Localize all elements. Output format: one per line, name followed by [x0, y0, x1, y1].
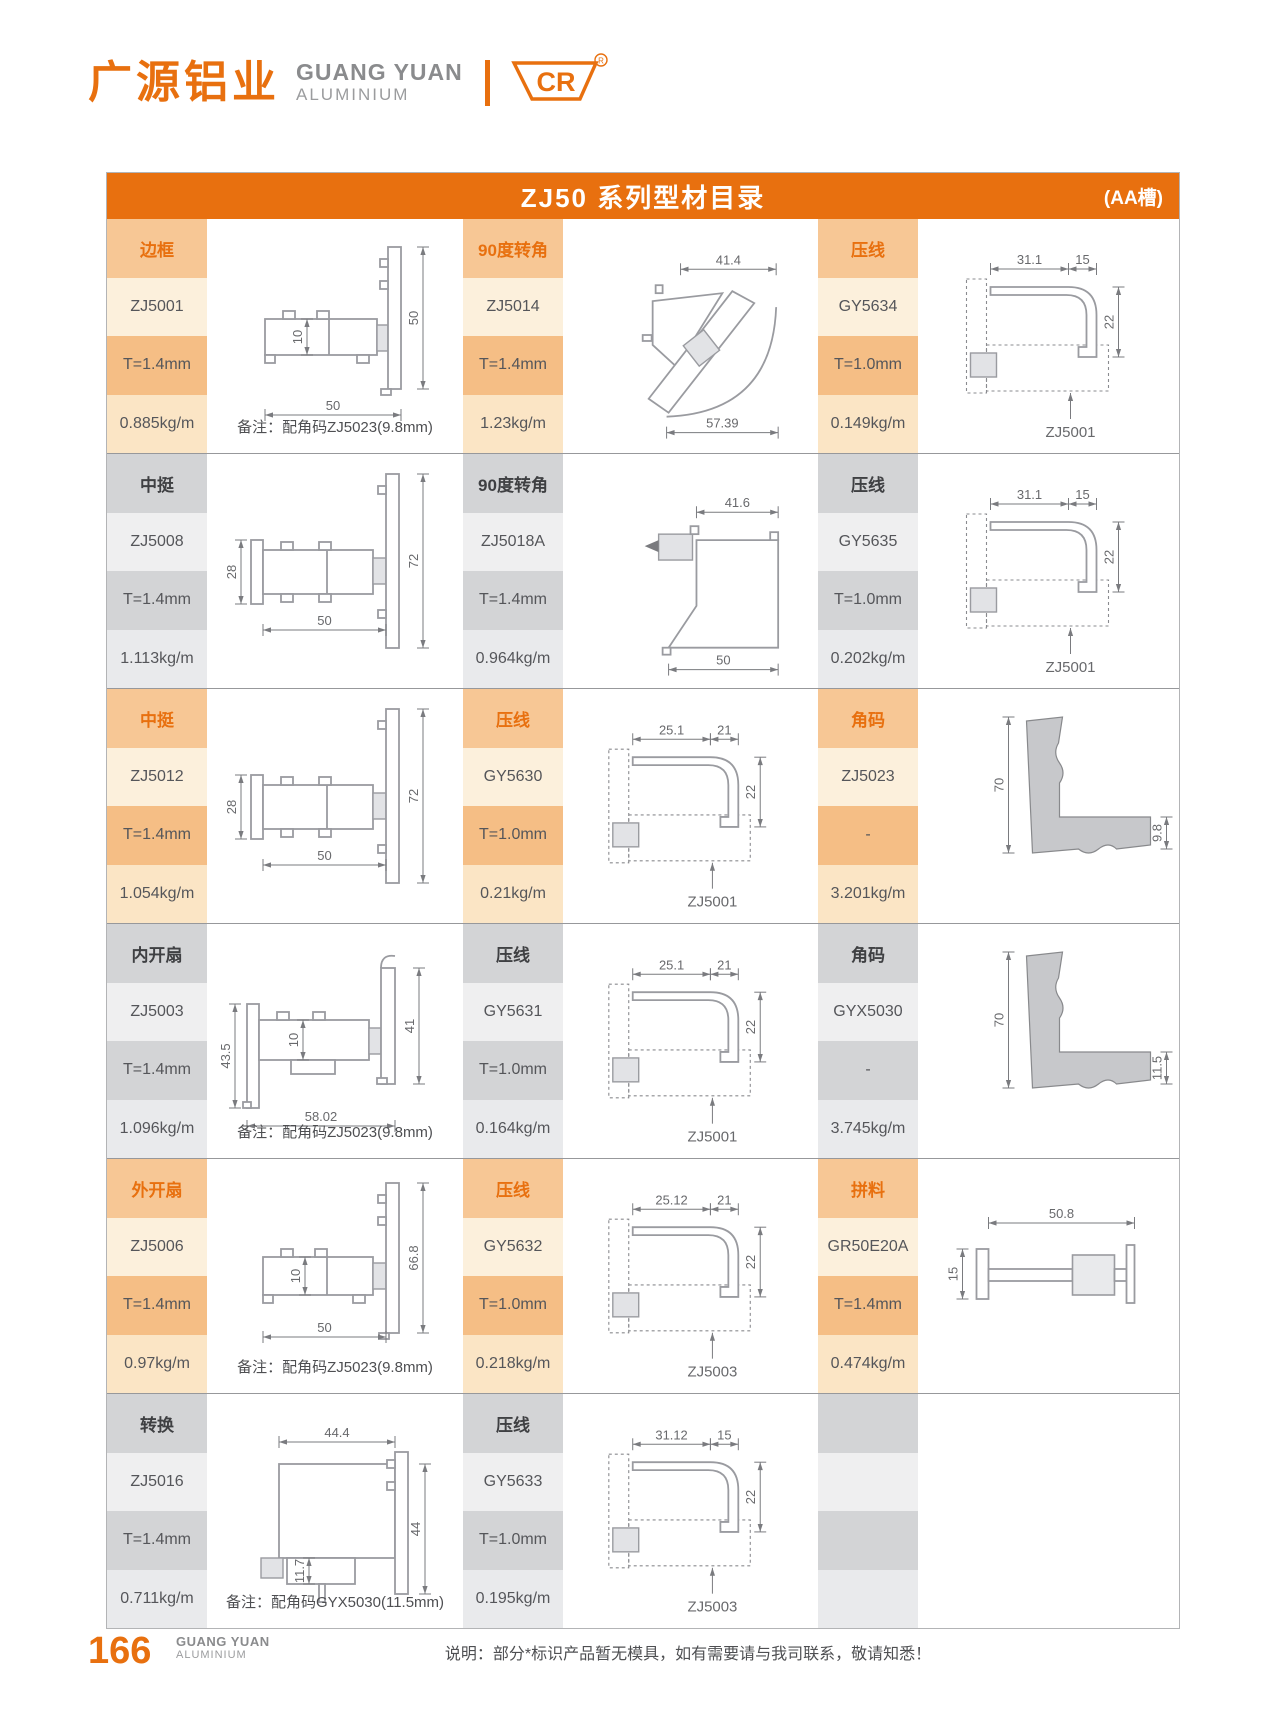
svg-text:ZJ5001: ZJ5001: [688, 894, 738, 911]
diagram-cell: 41.457.39: [563, 219, 818, 453]
category-cell: 90度转角: [463, 454, 563, 513]
diagram-cell: 41.650: [563, 454, 818, 688]
thickness-cell: -: [818, 1041, 918, 1100]
category-cell: 压线: [463, 689, 563, 748]
profile-diagram-mullion: 287250: [207, 454, 463, 688]
diagram-cell: 50.815: [918, 1159, 1179, 1393]
label-column: 中挺ZJ5008T=1.4mm1.113kg/m: [107, 454, 207, 688]
svg-text:50: 50: [716, 653, 730, 668]
catalog-row: 内开扇ZJ5003T=1.4mm1.096kg/m43.51058.0241备注…: [107, 923, 1179, 1158]
svg-text:10: 10: [288, 1269, 303, 1283]
diagram-cell: 31.121522ZJ5003: [563, 1394, 818, 1628]
model-cell: GYX5030: [818, 983, 918, 1042]
weight-cell: 0.21kg/m: [463, 865, 563, 924]
diagram-cell: 287250: [207, 454, 463, 688]
weight-cell: 3.201kg/m: [818, 865, 918, 924]
model-cell: ZJ5006: [107, 1218, 207, 1277]
svg-text:28: 28: [224, 800, 239, 814]
diagram-cell: [918, 1394, 1179, 1628]
category-cell: 角码: [818, 924, 918, 983]
model-cell: ZJ5023: [818, 748, 918, 807]
category-cell: 压线: [463, 1159, 563, 1218]
model-cell: ZJ5016: [107, 1453, 207, 1512]
logo-chinese: 广源铝业: [88, 61, 280, 105]
thickness-cell: T=1.4mm: [107, 336, 207, 395]
svg-text:15: 15: [717, 1427, 731, 1442]
svg-text:50: 50: [406, 311, 421, 325]
svg-text:9.8: 9.8: [1150, 824, 1165, 842]
weight-cell: 0.885kg/m: [107, 395, 207, 454]
diagram-cell: 43.51058.0241备注：配角码ZJ5023(9.8mm): [207, 924, 463, 1158]
label-column: 角码GYX5030-3.745kg/m: [818, 924, 918, 1158]
svg-text:10: 10: [290, 330, 305, 344]
svg-text:22: 22: [1102, 550, 1117, 564]
svg-text:ZJ5003: ZJ5003: [688, 1364, 738, 1381]
svg-text:43.5: 43.5: [218, 1043, 233, 1068]
svg-text:21: 21: [717, 1192, 731, 1207]
weight-cell: 1.113kg/m: [107, 630, 207, 689]
profile-diagram-bead: 25.122122ZJ5003: [563, 1159, 818, 1393]
svg-text:ZJ5001: ZJ5001: [1045, 424, 1095, 441]
profile-diagram-bracket: 7011.5: [918, 924, 1179, 1158]
svg-text:57.39: 57.39: [706, 416, 738, 431]
profile-diagram-empty: [918, 1394, 1179, 1628]
diagram-cell: 105050备注：配角码ZJ5023(9.8mm): [207, 219, 463, 453]
catalog-row: 外开扇ZJ5006T=1.4mm0.97kg/m105066.8备注：配角码ZJ…: [107, 1158, 1179, 1393]
thickness-cell: [818, 1511, 918, 1570]
label-column: 压线GY5633T=1.0mm0.195kg/m: [463, 1394, 563, 1628]
label-column: [818, 1394, 918, 1628]
profile-diagram-corner-sq: 41.650: [563, 454, 818, 688]
weight-cell: 1.054kg/m: [107, 865, 207, 924]
thickness-cell: T=1.4mm: [107, 806, 207, 865]
diagram-cell: 709.8: [918, 689, 1179, 923]
label-column: 角码ZJ5023-3.201kg/m: [818, 689, 918, 923]
weight-cell: 0.964kg/m: [463, 630, 563, 689]
label-column: 压线GY5634T=1.0mm0.149kg/m: [818, 219, 918, 453]
label-column: 压线GY5630T=1.0mm0.21kg/m: [463, 689, 563, 923]
svg-text:11.7: 11.7: [292, 1559, 307, 1583]
catalog-table: ZJ50 系列型材目录 (AA槽) 边框ZJ5001T=1.4mm0.885kg…: [106, 172, 1180, 1629]
category-cell: 边框: [107, 219, 207, 278]
label-column: 内开扇ZJ5003T=1.4mm1.096kg/m: [107, 924, 207, 1158]
svg-text:15: 15: [946, 1267, 961, 1281]
svg-text:41: 41: [402, 1019, 417, 1033]
category-cell: 90度转角: [463, 219, 563, 278]
weight-cell: 1.23kg/m: [463, 395, 563, 454]
thickness-cell: T=1.0mm: [463, 1041, 563, 1100]
svg-text:21: 21: [717, 722, 731, 737]
svg-text:50: 50: [326, 398, 340, 413]
thickness-cell: T=1.4mm: [818, 1276, 918, 1335]
thickness-cell: T=1.4mm: [107, 1276, 207, 1335]
profile-diagram-bead: 25.12122ZJ5001: [563, 924, 818, 1158]
logo-divider: [485, 60, 490, 106]
weight-cell: 0.202kg/m: [818, 630, 918, 689]
diagram-cell: 25.12122ZJ5001: [563, 924, 818, 1158]
note-text: 备注：配角码GYX5030(11.5mm): [207, 1591, 463, 1612]
weight-cell: 0.474kg/m: [818, 1335, 918, 1394]
logo-english-sub: ALUMINIUM: [296, 85, 463, 105]
svg-text:22: 22: [743, 1020, 758, 1034]
profile-diagram-corner-z: 41.457.39: [563, 219, 818, 453]
title-tag: (AA槽): [1104, 173, 1163, 219]
diagram-cell: 7011.5: [918, 924, 1179, 1158]
thickness-cell: T=1.0mm: [463, 1276, 563, 1335]
svg-text:10: 10: [286, 1033, 301, 1047]
diagram-cell: 25.12122ZJ5001: [563, 689, 818, 923]
svg-text:15: 15: [1075, 252, 1089, 267]
logo-english: GUANG YUAN ALUMINIUM: [296, 60, 463, 106]
label-column: 中挺ZJ5012T=1.4mm1.054kg/m: [107, 689, 207, 923]
thickness-cell: T=1.4mm: [107, 1511, 207, 1570]
svg-text:50: 50: [317, 613, 331, 628]
model-cell: ZJ5012: [107, 748, 207, 807]
label-column: 边框ZJ5001T=1.4mm0.885kg/m: [107, 219, 207, 453]
svg-text:50.8: 50.8: [1049, 1206, 1074, 1221]
model-cell: ZJ5001: [107, 278, 207, 337]
footer-brand-name: GUANG YUAN: [176, 1634, 270, 1649]
svg-text:22: 22: [1102, 315, 1117, 329]
footer-brand: GUANG YUAN ALUMINIUM: [176, 1634, 270, 1661]
weight-cell: 0.149kg/m: [818, 395, 918, 454]
svg-text:ZJ5003: ZJ5003: [688, 1599, 738, 1616]
label-column: 压线GY5635T=1.0mm0.202kg/m: [818, 454, 918, 688]
profile-diagram-bead: 31.11522ZJ5001: [918, 219, 1179, 453]
svg-text:ZJ5001: ZJ5001: [688, 1129, 738, 1146]
label-column: 拼料GR50E20AT=1.4mm0.474kg/m: [818, 1159, 918, 1393]
diagram-cell: 287250: [207, 689, 463, 923]
svg-text:44.4: 44.4: [324, 1425, 349, 1440]
catalog-row: 中挺ZJ5008T=1.4mm1.113kg/m28725090度转角ZJ501…: [107, 453, 1179, 688]
category-cell: 拼料: [818, 1159, 918, 1218]
svg-text:28: 28: [224, 565, 239, 579]
page-number: 166: [88, 1632, 151, 1670]
thickness-cell: T=1.4mm: [107, 571, 207, 630]
svg-text:ZJ5001: ZJ5001: [1045, 659, 1095, 676]
footer: 166 GUANG YUAN ALUMINIUM 说明：部分*标识产品暂无模具，…: [88, 1632, 1180, 1692]
category-cell: 外开扇: [107, 1159, 207, 1218]
model-cell: GY5630: [463, 748, 563, 807]
model-cell: GY5634: [818, 278, 918, 337]
svg-text:11.5: 11.5: [1150, 1056, 1165, 1080]
svg-text:72: 72: [406, 554, 421, 568]
footer-brand-sub: ALUMINIUM: [176, 1649, 270, 1661]
weight-cell: [818, 1570, 918, 1629]
thickness-cell: T=1.0mm: [818, 571, 918, 630]
category-cell: [818, 1394, 918, 1453]
catalog-table-body: 边框ZJ5001T=1.4mm0.885kg/m105050备注：配角码ZJ50…: [107, 219, 1179, 1628]
label-column: 90度转角ZJ5014T=1.4mm1.23kg/m: [463, 219, 563, 453]
svg-text:66.8: 66.8: [406, 1245, 421, 1270]
category-cell: 压线: [818, 454, 918, 513]
weight-cell: 0.218kg/m: [463, 1335, 563, 1394]
category-cell: 压线: [463, 1394, 563, 1453]
svg-text:50: 50: [317, 1320, 331, 1335]
svg-text:44: 44: [408, 1522, 423, 1536]
svg-text:22: 22: [743, 1255, 758, 1269]
svg-text:70: 70: [992, 778, 1007, 792]
svg-text:41.4: 41.4: [716, 252, 741, 267]
weight-cell: 0.164kg/m: [463, 1100, 563, 1159]
svg-text:25.1: 25.1: [659, 722, 684, 737]
footer-note: 说明：部分*标识产品暂无模具，如有需要请与我司联系，敬请知悉！: [338, 1640, 1038, 1664]
svg-text:31.1: 31.1: [1017, 252, 1042, 267]
header: 广源铝业 GUANG YUAN ALUMINIUM CR R: [88, 44, 612, 122]
svg-text:50: 50: [317, 848, 331, 863]
note-text: 备注：配角码ZJ5023(9.8mm): [207, 416, 463, 437]
thickness-cell: T=1.4mm: [107, 1041, 207, 1100]
svg-text:70: 70: [992, 1013, 1007, 1027]
svg-text:41.6: 41.6: [725, 495, 750, 510]
category-cell: 角码: [818, 689, 918, 748]
svg-text:15: 15: [1075, 487, 1089, 502]
label-column: 转换ZJ5016T=1.4mm0.711kg/m: [107, 1394, 207, 1628]
label-column: 压线GY5632T=1.0mm0.218kg/m: [463, 1159, 563, 1393]
profile-diagram-bracket: 709.8: [918, 689, 1179, 923]
svg-text:22: 22: [743, 785, 758, 799]
model-cell: ZJ5018A: [463, 513, 563, 572]
model-cell: GR50E20A: [818, 1218, 918, 1277]
cr-badge-text: CR: [536, 67, 575, 97]
svg-text:21: 21: [717, 957, 731, 972]
profile-diagram-bead: 31.11522ZJ5001: [918, 454, 1179, 688]
model-cell: GY5632: [463, 1218, 563, 1277]
catalog-page: 广源铝业 GUANG YUAN ALUMINIUM CR R ZJ50 系列型材…: [0, 0, 1277, 1721]
model-cell: GY5631: [463, 983, 563, 1042]
label-column: 90度转角ZJ5018AT=1.4mm0.964kg/m: [463, 454, 563, 688]
diagram-cell: 31.11522ZJ5001: [918, 454, 1179, 688]
model-cell: GY5633: [463, 1453, 563, 1512]
catalog-row: 边框ZJ5001T=1.4mm0.885kg/m105050备注：配角码ZJ50…: [107, 219, 1179, 453]
model-cell: GY5635: [818, 513, 918, 572]
title-bar: ZJ50 系列型材目录 (AA槽): [107, 173, 1179, 219]
svg-text:72: 72: [406, 789, 421, 803]
svg-text:25.12: 25.12: [655, 1192, 687, 1207]
profile-diagram-mullion: 287250: [207, 689, 463, 923]
thickness-cell: T=1.0mm: [463, 1511, 563, 1570]
page-title: ZJ50 系列型材目录: [107, 178, 1179, 215]
note-text: 备注：配角码ZJ5023(9.8mm): [207, 1356, 463, 1377]
label-column: 压线GY5631T=1.0mm0.164kg/m: [463, 924, 563, 1158]
model-cell: [818, 1453, 918, 1512]
category-cell: 内开扇: [107, 924, 207, 983]
weight-cell: 0.711kg/m: [107, 1570, 207, 1629]
weight-cell: 0.97kg/m: [107, 1335, 207, 1394]
svg-text:22: 22: [743, 1490, 758, 1504]
category-cell: 压线: [463, 924, 563, 983]
profile-diagram-bead: 25.12122ZJ5001: [563, 689, 818, 923]
svg-text:R: R: [598, 57, 604, 66]
diagram-cell: 25.122122ZJ5003: [563, 1159, 818, 1393]
thickness-cell: T=1.0mm: [818, 336, 918, 395]
svg-text:31.12: 31.12: [655, 1427, 687, 1442]
profile-diagram-joiner: 50.815: [918, 1159, 1179, 1393]
svg-text:31.1: 31.1: [1017, 487, 1042, 502]
model-cell: ZJ5003: [107, 983, 207, 1042]
logo-english-name: GUANG YUAN: [296, 60, 463, 85]
cr-badge-icon: CR R: [508, 51, 612, 115]
thickness-cell: T=1.4mm: [463, 336, 563, 395]
svg-text:25.1: 25.1: [659, 957, 684, 972]
diagram-cell: 44.411.744备注：配角码GYX5030(11.5mm): [207, 1394, 463, 1628]
catalog-row: 中挺ZJ5012T=1.4mm1.054kg/m287250压线GY5630T=…: [107, 688, 1179, 923]
model-cell: ZJ5008: [107, 513, 207, 572]
thickness-cell: -: [818, 806, 918, 865]
category-cell: 中挺: [107, 689, 207, 748]
note-text: 备注：配角码ZJ5023(9.8mm): [207, 1121, 463, 1142]
weight-cell: 0.195kg/m: [463, 1570, 563, 1629]
label-column: 外开扇ZJ5006T=1.4mm0.97kg/m: [107, 1159, 207, 1393]
thickness-cell: T=1.0mm: [463, 806, 563, 865]
thickness-cell: T=1.4mm: [463, 571, 563, 630]
model-cell: ZJ5014: [463, 278, 563, 337]
diagram-cell: 31.11522ZJ5001: [918, 219, 1179, 453]
diagram-cell: 105066.8备注：配角码ZJ5023(9.8mm): [207, 1159, 463, 1393]
category-cell: 中挺: [107, 454, 207, 513]
weight-cell: 3.745kg/m: [818, 1100, 918, 1159]
weight-cell: 1.096kg/m: [107, 1100, 207, 1159]
profile-diagram-bead: 31.121522ZJ5003: [563, 1394, 818, 1628]
category-cell: 压线: [818, 219, 918, 278]
catalog-row: 转换ZJ5016T=1.4mm0.711kg/m44.411.744备注：配角码…: [107, 1393, 1179, 1628]
category-cell: 转换: [107, 1394, 207, 1453]
